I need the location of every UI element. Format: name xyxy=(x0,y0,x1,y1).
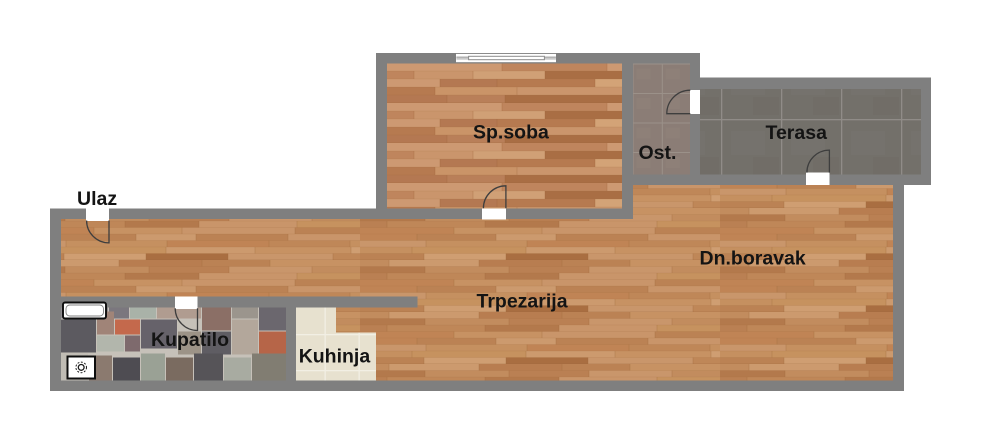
svg-text:Ost.: Ost. xyxy=(639,142,677,164)
svg-text:Sp.soba: Sp.soba xyxy=(473,122,549,144)
svg-text:Kupatilo: Kupatilo xyxy=(151,329,229,351)
svg-text:Terasa: Terasa xyxy=(766,122,828,144)
svg-text:Ulaz: Ulaz xyxy=(77,188,117,210)
svg-text:Dn.boravak: Dn.boravak xyxy=(700,247,806,269)
svg-text:Trpezarija: Trpezarija xyxy=(477,291,568,313)
svg-text:Kuhinja: Kuhinja xyxy=(299,346,371,368)
